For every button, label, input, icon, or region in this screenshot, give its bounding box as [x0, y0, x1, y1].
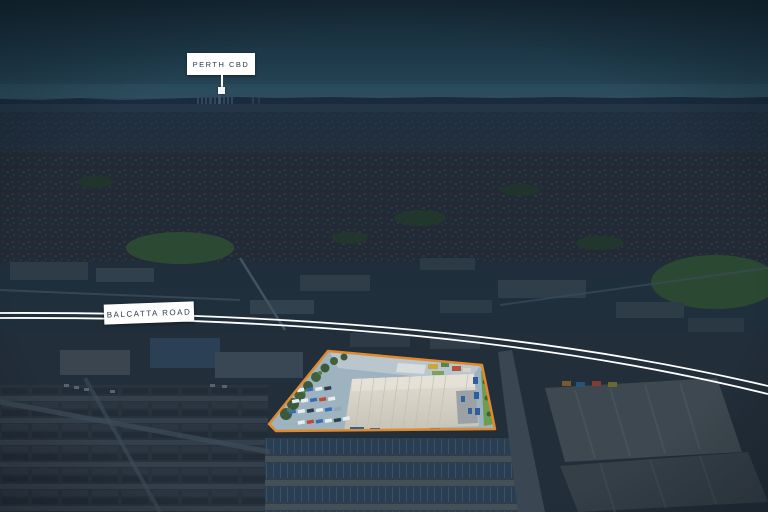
perth-cbd-label: PERTH CBD	[193, 60, 250, 69]
aerial-scene-svg	[0, 0, 768, 512]
balcatta-road-label: BALCATTA ROAD	[107, 307, 192, 319]
balcatta-road-callout: BALCATTA ROAD	[104, 301, 195, 324]
vignette	[0, 0, 768, 512]
perth-cbd-callout: PERTH CBD	[187, 53, 255, 75]
aerial-photo: PERTH CBD BALCATTA ROAD	[0, 0, 768, 512]
cbd-location-marker-icon	[218, 87, 225, 94]
